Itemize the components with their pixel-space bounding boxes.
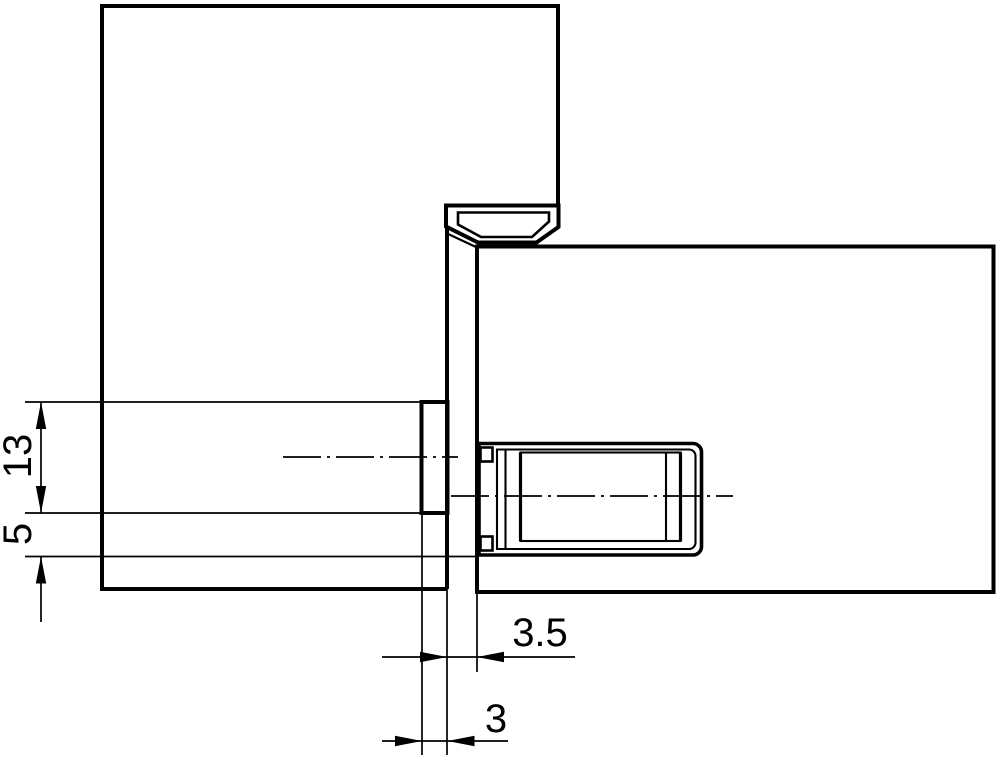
dimension-3-label: 3	[485, 697, 507, 741]
hinge-section-drawing: 13 5 3.5 3	[0, 0, 1000, 763]
dimension-3-5-arrow-right	[477, 652, 504, 662]
dimension-3-5-label: 3.5	[512, 611, 568, 655]
dimension-13-arrow-up	[36, 402, 46, 429]
case-retainer-hook-bottom	[481, 537, 493, 551]
case-retainer-hook-top	[481, 448, 493, 462]
dimension-3-arrow-left	[395, 736, 422, 746]
dimension-13-label: 13	[0, 434, 40, 479]
dimension-5-label: 5	[0, 523, 40, 545]
hinge-case	[479, 444, 702, 556]
case-outer-shell	[479, 444, 702, 556]
frame-panel	[102, 6, 558, 589]
frame-panel-outline	[102, 6, 558, 589]
extension-lines	[25, 402, 479, 755]
dimension-13: 13	[0, 402, 46, 513]
dimension-3-5: 3.5	[382, 611, 575, 662]
dimension-3-arrow-right	[448, 736, 475, 746]
dimension-5: 5	[0, 523, 46, 622]
dimension-3-5-arrow-left	[420, 652, 447, 662]
dimension-13-arrow-down	[36, 486, 46, 513]
dimension-3: 3	[382, 697, 508, 746]
technical-drawing-canvas: 13 5 3.5 3	[0, 0, 1000, 763]
hinge-cover-plate	[446, 206, 559, 248]
dimension-5-arrow-up	[36, 557, 46, 584]
